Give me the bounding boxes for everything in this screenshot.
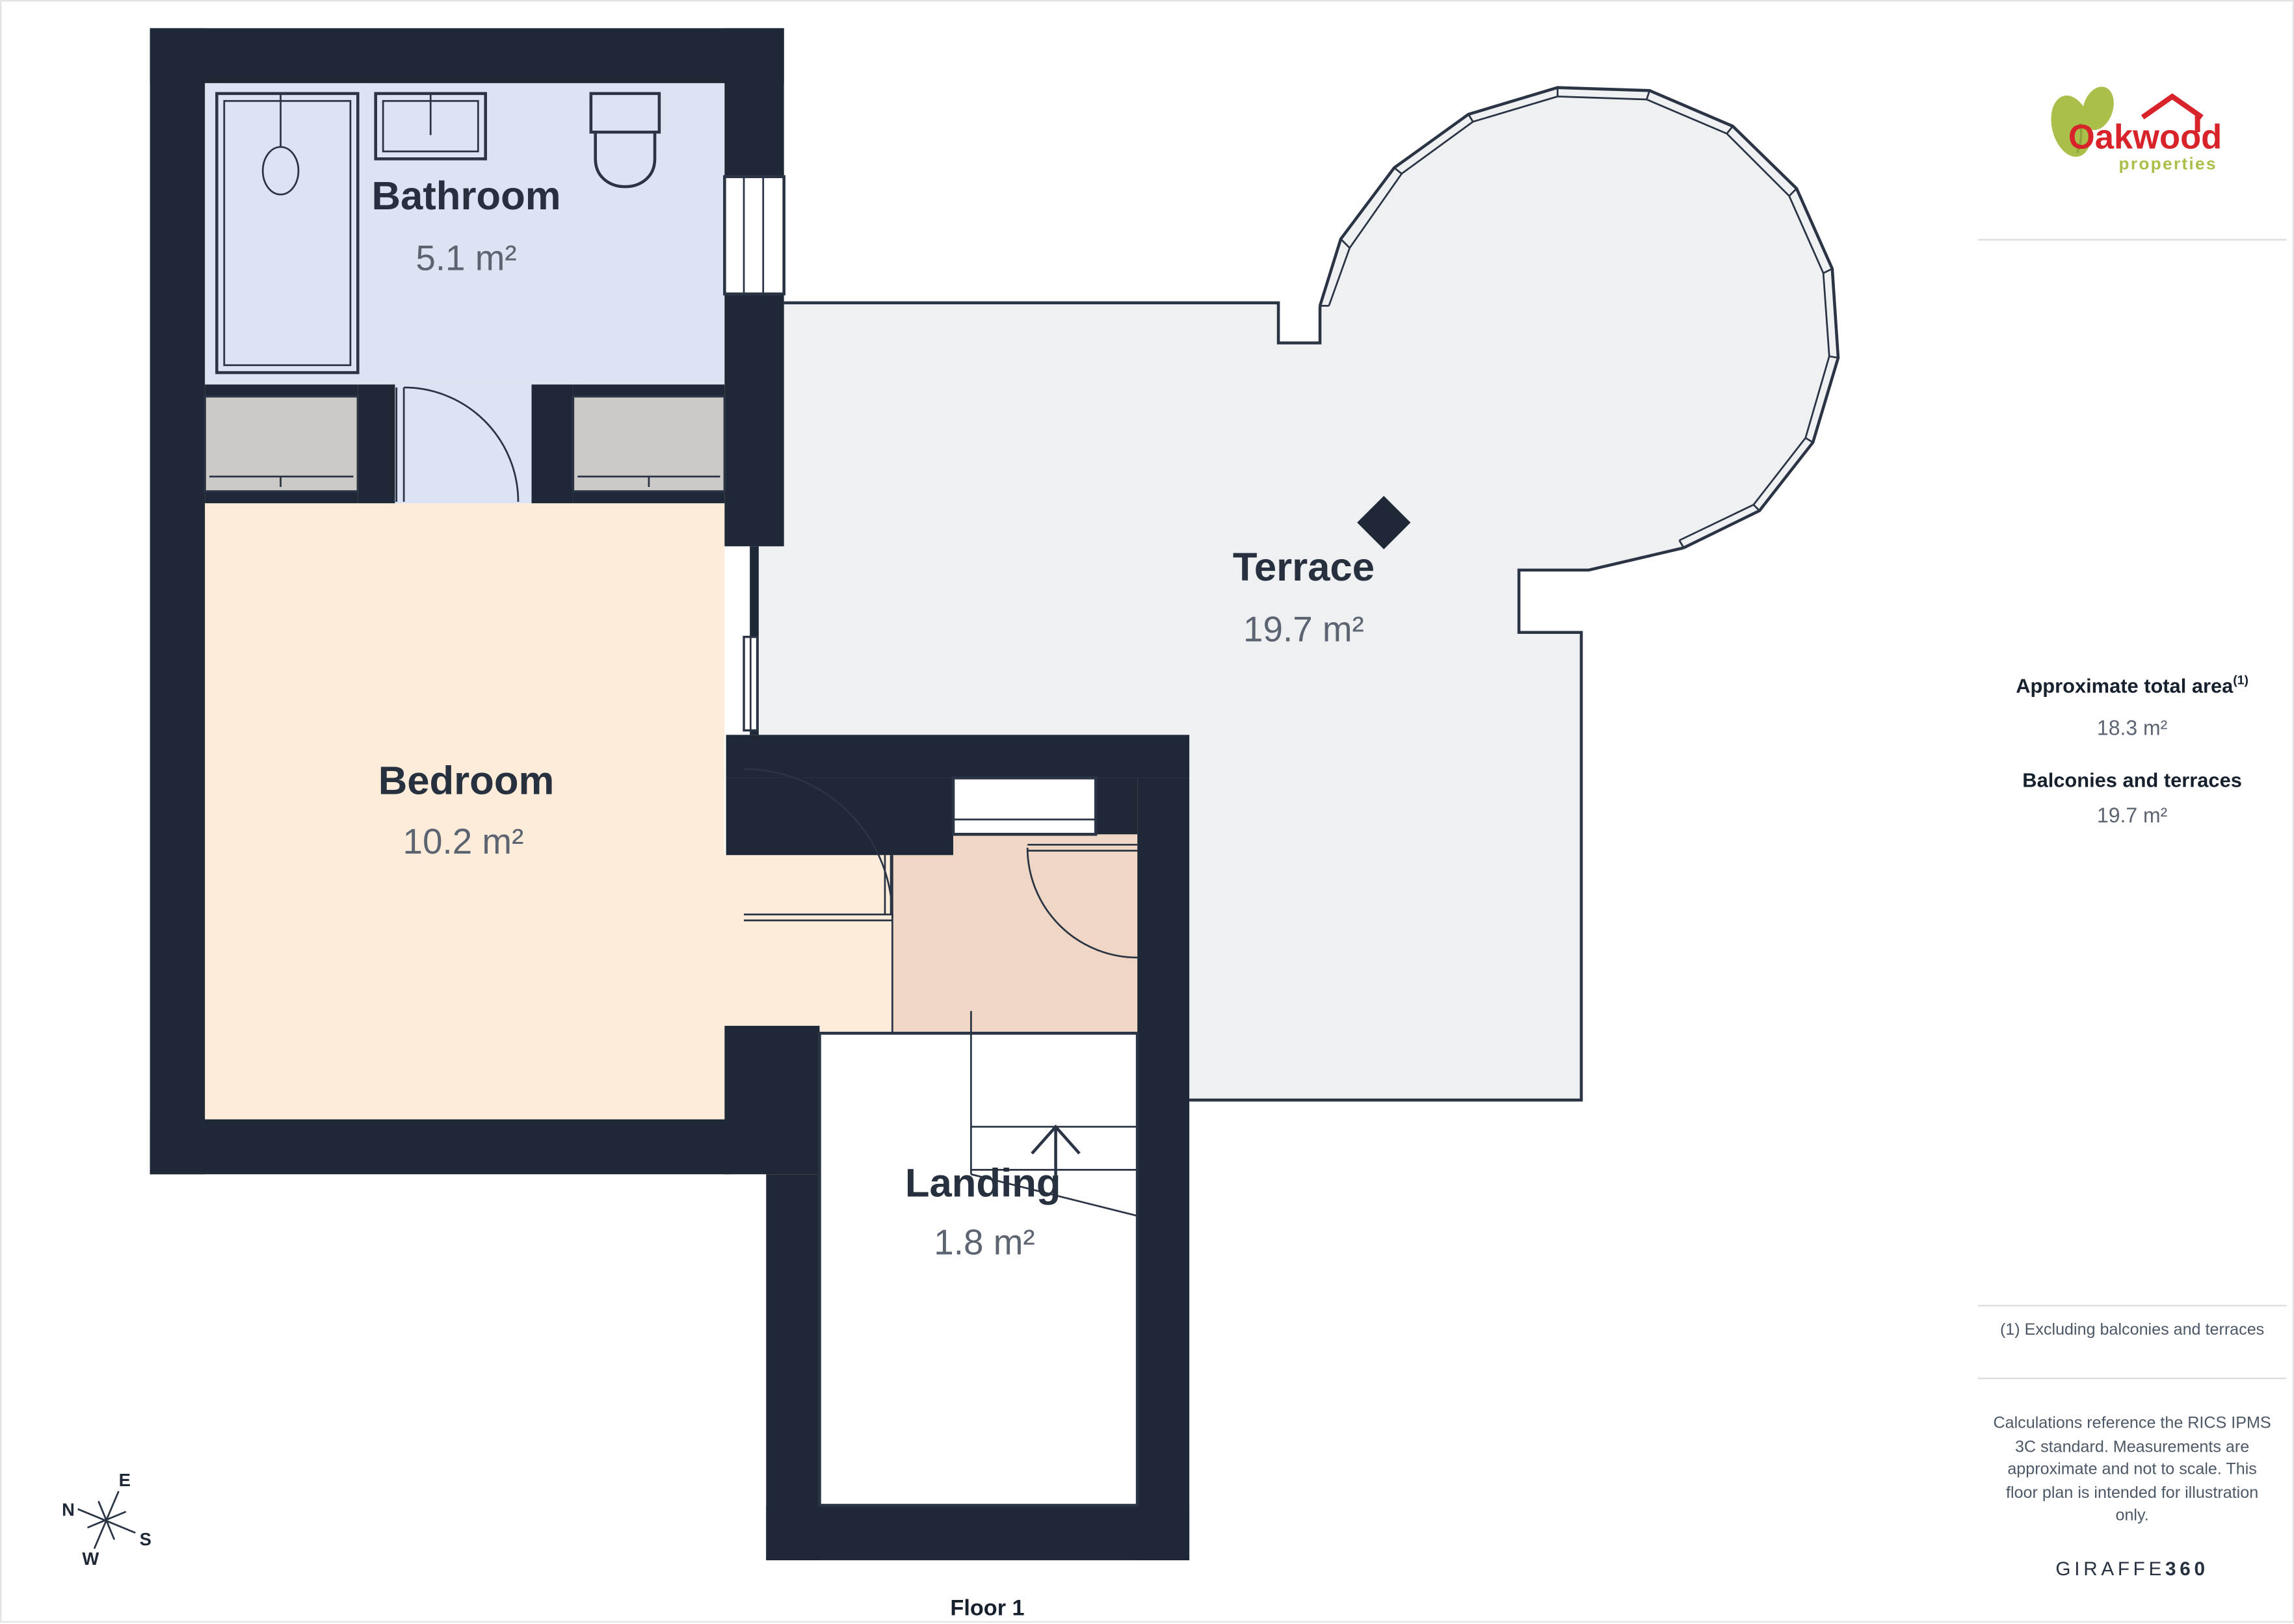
logo-secondary-text: properties	[2119, 153, 2217, 173]
bathroom-window	[724, 177, 784, 294]
disclaimer-line: 3C standard. Measurements are	[1978, 1436, 2287, 1459]
landing-terrace-window	[953, 778, 1096, 835]
sidebar-divider-top	[1978, 239, 2287, 241]
compass-n: N	[62, 1499, 75, 1519]
room-label-landing: Landing	[905, 1161, 1061, 1206]
room-label-terrace: Terrace	[1233, 545, 1375, 590]
floorplan-page: Bathroom 5.1 m² Bedroom 10.2 m² Terrace …	[0, 0, 2294, 1623]
disclaimer-line: only.	[1978, 1505, 2287, 1528]
room-label-bathroom: Bathroom	[371, 174, 560, 218]
bedroom-glazing-strip	[744, 637, 758, 731]
total-area-value: 18.3 m²	[1978, 716, 2287, 740]
room-area-landing: 1.8 m²	[934, 1222, 1035, 1263]
bedroom-floor	[205, 503, 724, 1120]
logo-primary-text: Oakwood	[2068, 118, 2222, 156]
bathroom-floor	[205, 83, 724, 385]
giraffe360-brand: GIRAFFE360	[1978, 1557, 2287, 1579]
compass-w: W	[82, 1549, 99, 1569]
room-area-terrace: 19.7 m²	[1243, 609, 1364, 649]
giraffe360-suffix: 360	[2165, 1557, 2209, 1579]
bathroom-door-floor	[395, 384, 531, 503]
total-area-label-text: Approximate total area	[2016, 675, 2233, 697]
disclaimer-line: approximate and not to scale. This	[1978, 1460, 2287, 1482]
footnote-marker: (1)	[2233, 672, 2248, 687]
balconies-label: Balconies and terraces	[1978, 769, 2287, 791]
compass-e: E	[119, 1470, 131, 1490]
floor-label: Floor 1	[950, 1595, 1024, 1620]
sidebar-divider-footnote	[1978, 1305, 2287, 1306]
compass-s: S	[140, 1529, 152, 1549]
total-area-label: Approximate total area(1)	[1978, 672, 2287, 697]
hallway-floor	[724, 855, 892, 1033]
disclaimer-line: floor plan is intended for illustration	[1978, 1482, 2287, 1505]
balconies-value: 19.7 m²	[1978, 803, 2287, 827]
compass-icon: N E S W	[62, 1470, 152, 1569]
sidebar-divider-disclaimer	[1978, 1378, 2287, 1379]
footnote-text: (1) Excluding balconies and terraces	[1978, 1321, 2287, 1339]
company-logo: Oakwood properties	[2051, 82, 2232, 186]
room-area-bathroom: 5.1 m²	[415, 238, 516, 278]
disclaimer-block: Calculations reference the RICS IPMS 3C …	[1978, 1413, 2287, 1528]
giraffe360-name: GIRAFFE	[2055, 1557, 2165, 1579]
stairwell	[819, 1033, 1137, 1505]
floorplan-drawing: Bathroom 5.1 m² Bedroom 10.2 m² Terrace …	[1, 1, 2294, 1624]
room-area-bedroom: 10.2 m²	[403, 821, 524, 861]
disclaimer-line: Calculations reference the RICS IPMS	[1978, 1413, 2287, 1436]
room-label-bedroom: Bedroom	[378, 759, 555, 804]
